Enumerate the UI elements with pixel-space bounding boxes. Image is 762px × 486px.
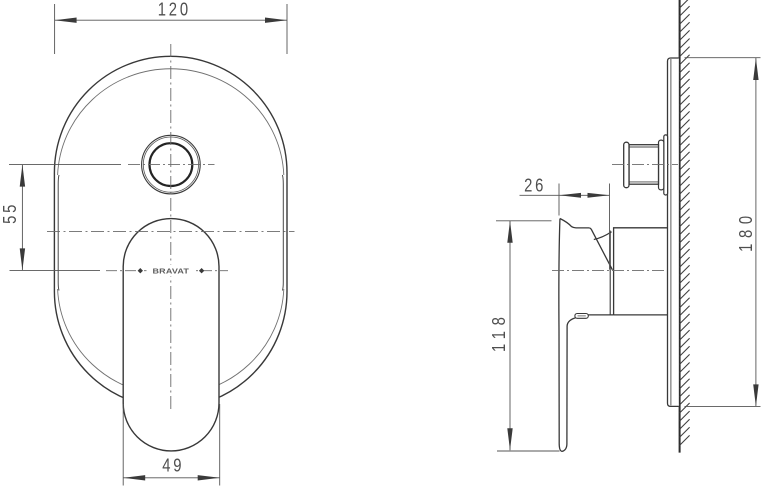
svg-text:49: 49: [162, 455, 184, 476]
svg-text:BRAVAT: BRAVAT: [152, 267, 189, 275]
svg-text:55: 55: [0, 202, 21, 224]
svg-text:26: 26: [524, 175, 546, 196]
svg-text:118: 118: [488, 312, 509, 352]
svg-text:120: 120: [158, 0, 191, 20]
svg-text:180: 180: [735, 210, 756, 251]
